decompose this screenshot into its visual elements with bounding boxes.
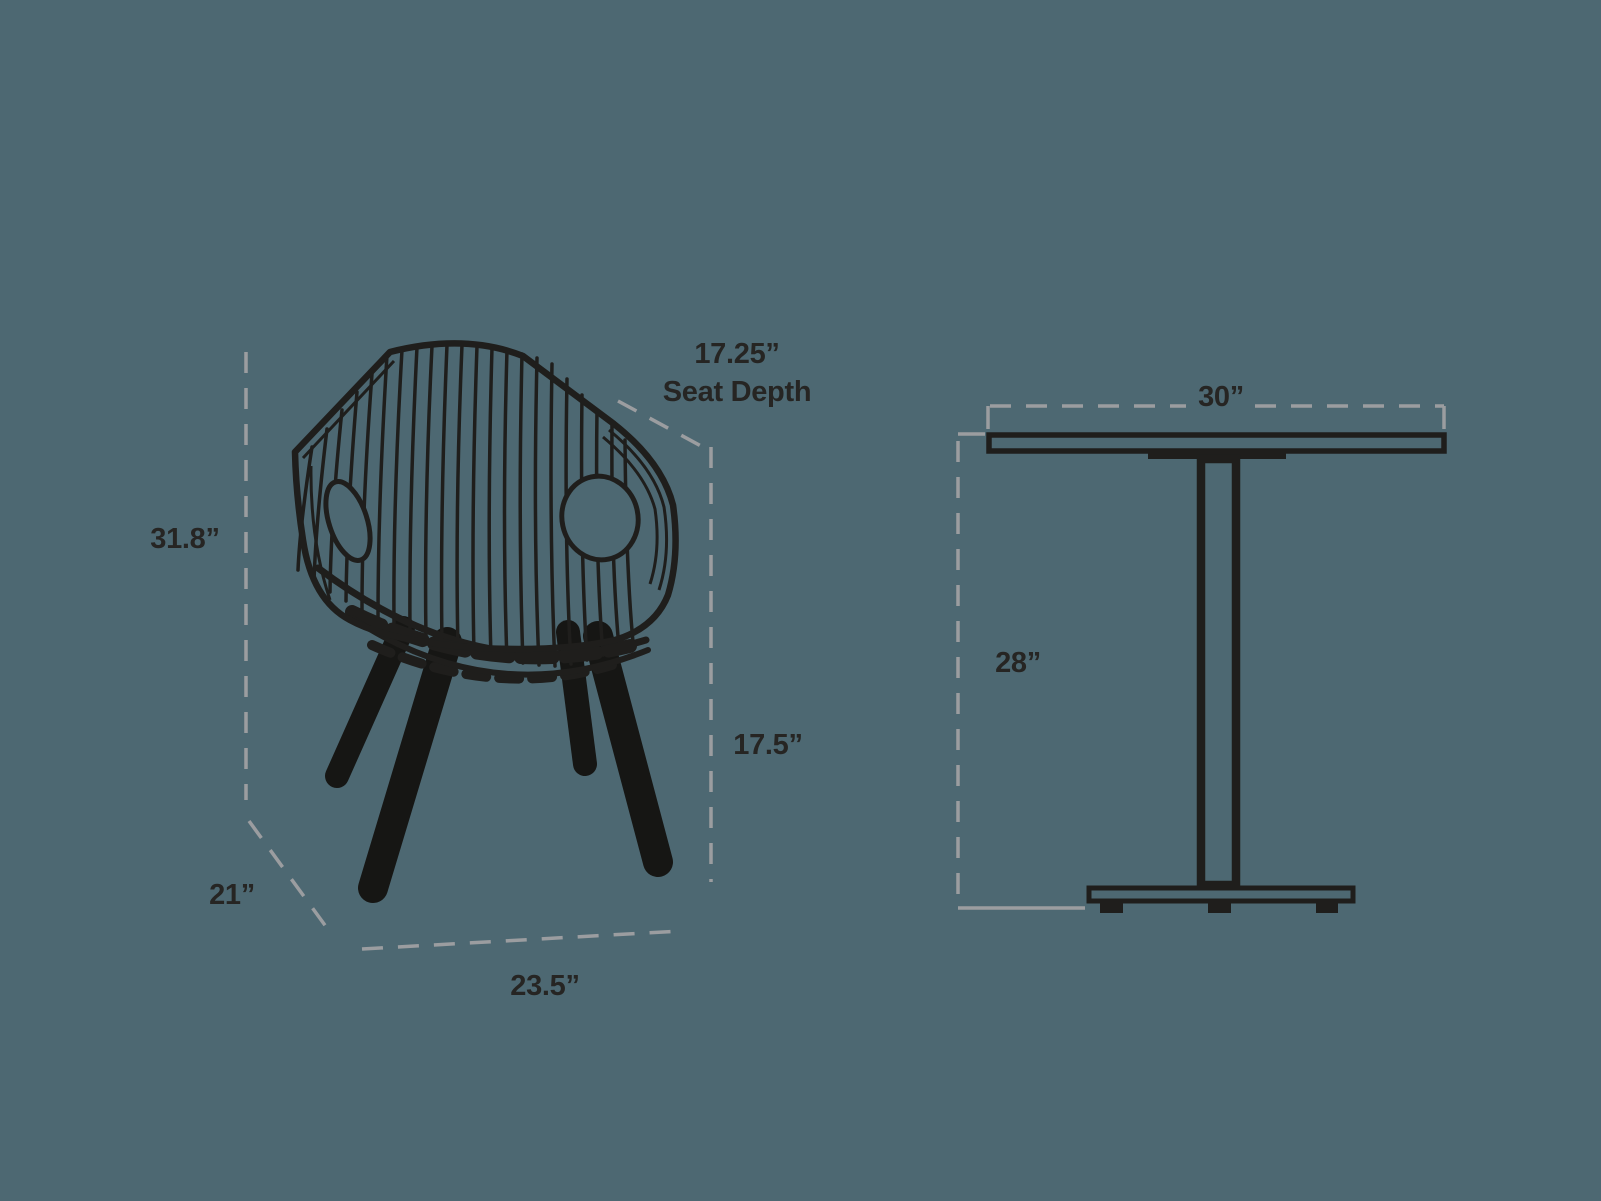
table-base (1089, 888, 1353, 901)
chair-depth-label: 21” (209, 876, 255, 914)
chair-depth-guide-line (249, 821, 327, 928)
chair-arm-cutout-left (317, 476, 378, 566)
table-pedestal-column (1201, 459, 1236, 885)
chair-height-label: 31.8” (150, 520, 219, 558)
table-top (989, 435, 1444, 451)
table-height-label: 28” (995, 644, 1041, 682)
table-illustration (989, 435, 1444, 913)
chair-seat-height-label: 17.5” (733, 726, 802, 764)
chair-seat-depth-value: 17.25” (663, 335, 811, 373)
dimension-diagram-stage: 17.25” Seat Depth 31.8” 17.5” 21” 23.5” … (0, 0, 1601, 1201)
chair-illustration (295, 343, 676, 888)
chair-width-guide-line (362, 931, 681, 949)
table-foot-left (1100, 903, 1123, 913)
table-foot-right (1316, 903, 1338, 913)
table-width-label: 30” (1198, 378, 1244, 416)
chair-width-label: 23.5” (510, 967, 579, 1005)
diagram-canvas (0, 0, 1601, 1201)
table-foot-center (1208, 903, 1231, 913)
chair-seat-depth-caption: Seat Depth (663, 373, 811, 411)
table-feet (1100, 903, 1338, 913)
chair-seat-depth-label: 17.25” Seat Depth (663, 335, 811, 411)
